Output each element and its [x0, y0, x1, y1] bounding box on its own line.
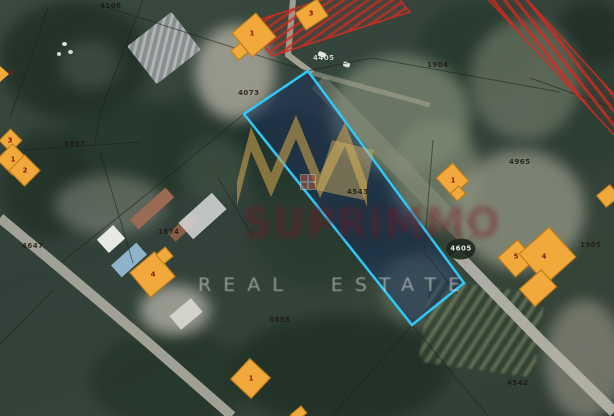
- watermark-brand: SUPRIMMO: [243, 200, 501, 248]
- parcel-label: 4073: [238, 90, 259, 97]
- parcel-label: 1857: [64, 141, 85, 148]
- parcel-label: 4405: [313, 55, 334, 62]
- parcel-label: 4542: [507, 380, 528, 387]
- parcel-label: 3858: [269, 317, 290, 324]
- parcel-label: 4108: [100, 3, 121, 10]
- parcel-label: 4647: [22, 243, 43, 250]
- building-number: 4: [542, 254, 547, 261]
- building-number: 2: [23, 168, 28, 175]
- parcel-label: 1874: [158, 229, 179, 236]
- parcel-label: 4543: [347, 189, 368, 196]
- building-number: 1: [250, 31, 255, 38]
- parcel-label: 1904: [427, 62, 448, 69]
- parcel-label: 4965: [509, 159, 530, 166]
- building-number: 1: [11, 157, 16, 164]
- building-number: 3: [309, 11, 314, 18]
- building-number: 4: [9, 70, 14, 77]
- building-number: 3: [8, 138, 13, 145]
- building-number: 1: [451, 178, 456, 185]
- grid-icon: [301, 175, 316, 190]
- satellite-map[interactable]: 13312411544 4108440540731857187446474543…: [0, 0, 614, 416]
- building-number: 1: [249, 376, 254, 383]
- building-number: 4: [151, 272, 156, 279]
- watermark-tagline: REAL ESTATE: [198, 274, 472, 296]
- building-number: 5: [514, 254, 519, 261]
- parcel-label: 1905: [580, 242, 601, 249]
